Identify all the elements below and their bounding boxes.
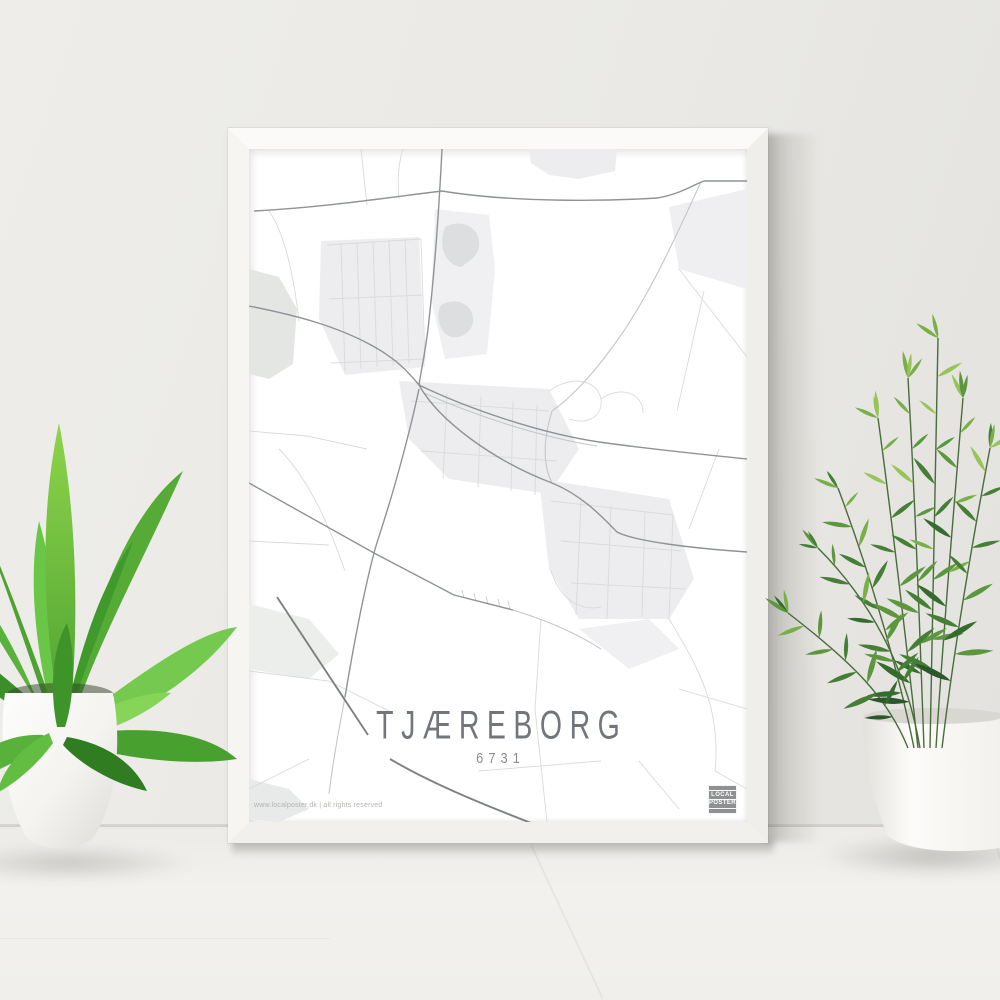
right-plant-leaves xyxy=(765,314,1000,720)
frame-contact-shadow xyxy=(232,841,774,857)
right-plant-stems xyxy=(788,338,990,748)
poster-frame: TJÆREBORG 6731 www.localposter.dk | all … xyxy=(228,128,768,843)
left-plant xyxy=(0,395,305,875)
brand-line1: LOCAL xyxy=(709,792,736,799)
floor-seam xyxy=(0,938,330,939)
brand-badge: LOCAL POSTER xyxy=(709,786,736,813)
product-photo-scene: TJÆREBORG 6731 www.localposter.dk | all … xyxy=(0,0,1000,1000)
poster-postal-code: 6731 xyxy=(286,750,709,767)
brand-line2: POSTER xyxy=(709,799,736,807)
poster-title: TJÆREBORG xyxy=(311,704,685,749)
right-plant xyxy=(758,278,1000,863)
map-poster: TJÆREBORG 6731 www.localposter.dk | all … xyxy=(249,149,747,822)
